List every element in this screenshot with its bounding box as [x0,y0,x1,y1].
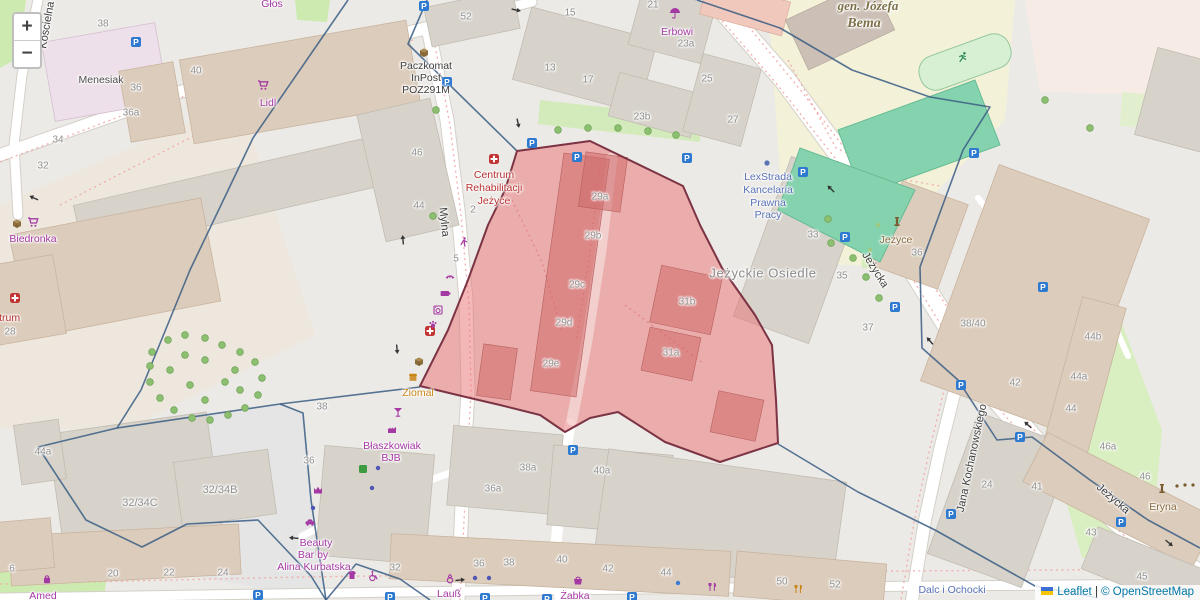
openstreetmap-link[interactable]: © OpenStreetMap [1101,586,1194,598]
tree-icon [555,127,562,134]
tree-icon [189,415,196,422]
dot-indigo-icon [370,486,374,490]
map-canvas[interactable]: P [0,0,1200,600]
tree-icon [237,387,244,394]
tree-icon [1042,97,1049,104]
zoom-in-button[interactable]: + [14,14,40,41]
zoom-out-button[interactable]: − [14,41,40,67]
tree-icon [219,342,226,349]
parking-icon [1015,432,1025,442]
battery-icon [441,291,451,296]
tree-icon [202,335,209,342]
tree-icon [850,255,857,262]
parking-icon [419,1,429,11]
ukraine-flag-icon [1041,587,1053,595]
wheelchair-icon [370,571,377,581]
square-green-icon [359,465,367,473]
tree-icon [157,395,164,402]
tree-icon [1087,125,1094,132]
tree-icon [825,216,832,223]
shop-orange-icon [409,374,417,381]
parking-icon [253,590,263,600]
parking-icon [385,592,395,600]
dot-brown-icon [1183,483,1186,486]
arrow-icon [394,344,400,354]
parking-icon [480,593,490,600]
parking-icon [442,77,452,87]
dot-blue-icon [676,581,680,585]
tree-icon [828,240,835,247]
leaflet-link[interactable]: Leaflet [1057,586,1092,598]
tree-icon [149,349,156,356]
tree-icon [187,382,194,389]
tree-icon [167,367,174,374]
medical-icon [489,154,499,164]
parking-icon [568,445,578,455]
parking-icon [946,509,956,519]
parking-icon [542,594,552,600]
tree-icon [171,407,178,414]
tree-icon [863,274,870,281]
tree-icon [202,397,209,404]
tree-icon [252,359,259,366]
tree-icon [222,379,229,386]
tree-icon [147,363,154,370]
tree-icon [255,392,262,399]
tree-icon [242,405,249,412]
tree-icon [673,132,680,139]
lashes-icon [446,276,454,279]
attribution-separator: | [1095,586,1098,598]
tree-icon [615,125,622,132]
parking-icon [1038,282,1048,292]
monument-icon [1159,484,1164,493]
tree-icon [182,352,189,359]
tree-icon [259,375,266,382]
dot-indigo-icon [376,466,380,470]
bush-icon [898,238,902,242]
parking-icon [890,302,900,312]
factory-icon [388,427,396,433]
dot-indigo-icon [487,576,491,580]
parking-icon [840,232,850,242]
parking-icon [572,152,582,162]
parking-icon [527,138,537,148]
tree-icon [202,357,209,364]
crown-icon [314,487,322,494]
tree-icon [237,349,244,356]
clothes-icon [348,571,356,579]
dot-brown-icon [1175,484,1178,487]
tree-icon [430,213,437,220]
dot-indigo-icon [473,576,477,580]
parking-icon [1116,517,1126,527]
parking-icon [682,153,692,163]
dot-brown-icon [1191,483,1194,486]
washer-icon [434,306,442,314]
arrow-icon [515,118,522,128]
basemap-svg: P [0,0,1200,600]
bush-icon [876,223,880,227]
parking-icon [969,148,979,158]
parking-icon [131,37,141,47]
tree-icon [225,412,232,419]
tree-icon [147,379,154,386]
bush-icon [913,253,917,257]
tree-icon [645,128,652,135]
tree-icon [207,417,214,424]
medical-icon [10,293,20,303]
cocktail-icon [394,408,402,416]
dot-indigo-icon [311,506,315,510]
parking-icon [627,592,637,600]
tree-icon [165,337,172,344]
tree-icon [876,295,883,302]
tree-icon [433,107,440,114]
dot-office-icon [764,160,769,165]
zoom-control: + − [12,12,42,69]
tree-icon [232,367,239,374]
tree-icon [585,125,592,132]
attribution-bar: Leaflet | © OpenStreetMap [1035,585,1200,600]
tree-icon [182,332,189,339]
bush-icon [868,248,872,252]
parking-icon [798,167,808,177]
parking-icon [956,380,966,390]
package-icon [415,358,423,367]
